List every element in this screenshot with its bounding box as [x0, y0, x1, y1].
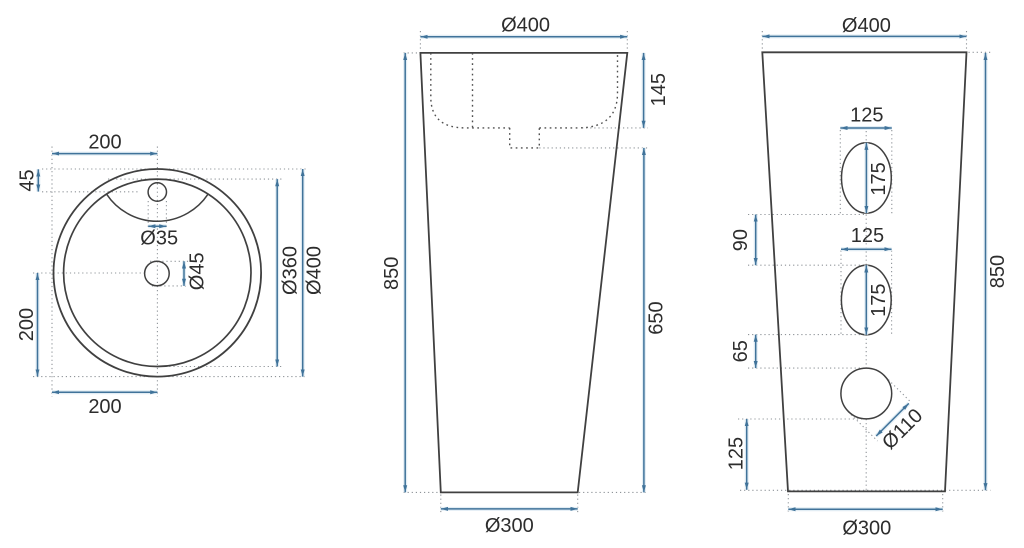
svg-text:Ø400: Ø400 [501, 15, 550, 37]
svg-text:Ø400: Ø400 [304, 246, 326, 295]
svg-text:175: 175 [868, 284, 890, 317]
svg-text:125: 125 [851, 225, 884, 247]
svg-text:850: 850 [381, 257, 403, 290]
svg-text:145: 145 [648, 73, 670, 106]
svg-text:Ø300: Ø300 [485, 515, 534, 537]
svg-text:200: 200 [16, 308, 38, 341]
svg-text:65: 65 [730, 340, 752, 362]
svg-text:90: 90 [730, 229, 752, 251]
svg-text:Ø400: Ø400 [842, 15, 891, 37]
svg-text:Ø300: Ø300 [842, 517, 891, 539]
svg-text:Ø360: Ø360 [280, 246, 302, 295]
svg-text:125: 125 [725, 437, 747, 470]
svg-text:200: 200 [88, 131, 121, 153]
svg-text:175: 175 [868, 162, 890, 195]
svg-text:850: 850 [987, 255, 1009, 288]
svg-text:200: 200 [88, 396, 121, 418]
svg-text:125: 125 [850, 105, 883, 127]
svg-text:Ø35: Ø35 [140, 228, 178, 250]
svg-text:Ø45: Ø45 [187, 252, 209, 290]
svg-text:650: 650 [646, 301, 668, 334]
svg-text:45: 45 [17, 169, 39, 191]
